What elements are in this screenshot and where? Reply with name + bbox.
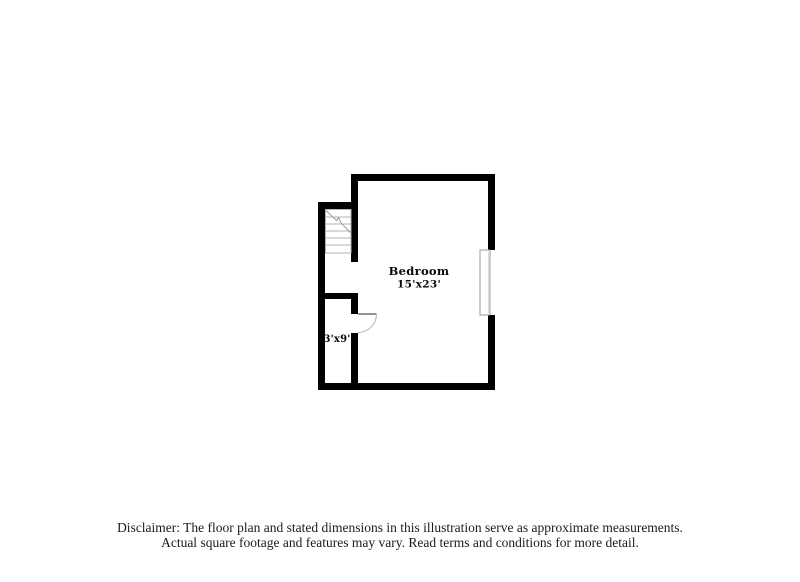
wall-stair-divider (351, 174, 358, 262)
closet-dimensions-label: 3'x9' (323, 334, 350, 345)
wall-bottom (318, 383, 495, 390)
bedroom-dimensions-label: 15'x23' (397, 279, 441, 291)
wall-door-jamb-upper (351, 299, 358, 314)
window-symbol (480, 250, 490, 315)
wall-right-lower (488, 315, 495, 390)
wall-top (351, 174, 495, 181)
floor-plan-drawing: Bedroom 15'x23' 3'x9' (0, 0, 800, 582)
wall-right-upper (488, 174, 495, 250)
door-swing-symbol (358, 314, 377, 333)
door-arc (358, 314, 377, 333)
floor-plan-page: Bedroom 15'x23' 3'x9' Disclaimer: The fl… (0, 0, 800, 582)
disclaimer: Disclaimer: The floor plan and stated di… (0, 520, 800, 550)
disclaimer-line-2: Actual square footage and features may v… (0, 535, 800, 550)
wall-door-jamb-lower (351, 333, 358, 390)
stairs-symbol (326, 210, 352, 254)
bedroom-label: Bedroom (389, 264, 450, 278)
wall-closet-top (318, 293, 358, 299)
disclaimer-line-1: Disclaimer: The floor plan and stated di… (0, 520, 800, 535)
